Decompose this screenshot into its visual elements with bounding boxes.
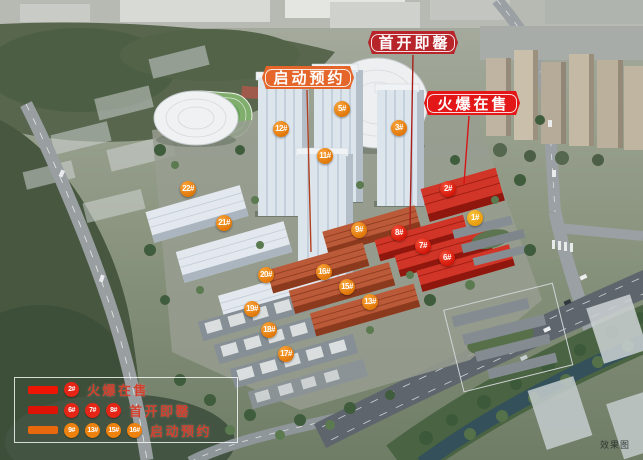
building-badge-21: 21# [216,215,232,231]
building-badge-1: 1# [467,210,483,226]
building-badge-11: 11# [317,148,333,164]
callout-text: 首开即罄 [375,32,450,53]
building-badge-9: 9# [351,222,367,238]
building-badge-12: 12# [273,121,289,137]
building-badge-6: 6# [439,250,455,266]
legend: 2#火爆在售6#7#8#首开即罄9#13#15#16#启动预约 [14,377,238,443]
legend-badge-7: 7# [85,403,100,418]
building-badge-18: 18# [261,322,277,338]
building-badge-16: 16# [316,264,332,280]
callout-label: 首开即罄 [368,31,458,54]
callout-label: 火爆在售 [424,91,520,115]
aerial-render-image: 5#12#3#11#22#2#1#21#9#8#7#6#16#20#15#13#… [0,0,643,460]
legend-badge-16: 16# [127,423,142,438]
building-badge-17: 17# [278,346,294,362]
legend-badge-8: 8# [106,403,121,418]
building-badge-3: 3# [391,120,407,136]
legend-swatch [28,426,58,434]
legend-badge-15: 15# [106,423,121,438]
callout-text: 火爆在售 [434,93,509,114]
building-badge-22: 22# [180,181,196,197]
building-badge-8: 8# [391,225,407,241]
callout-label: 启动预约 [262,66,354,89]
legend-row: 2#火爆在售 [28,381,237,398]
building-badge-7: 7# [415,238,431,254]
legend-label: 火爆在售 [87,380,149,399]
building-badge-2: 2# [440,181,456,197]
callout-text: 启动预约 [270,67,345,88]
legend-label: 首开即罄 [129,401,191,420]
legend-badge-9: 9# [64,423,79,438]
legend-badge-2: 2# [64,382,79,397]
legend-swatch [28,386,58,394]
legend-row: 6#7#8#首开即罄 [28,402,237,419]
building-badge-20: 20# [258,267,274,283]
legend-badge-6: 6# [64,403,79,418]
legend-badge-13: 13# [85,423,100,438]
legend-row: 9#13#15#16#启动预约 [28,422,237,439]
building-badge-19: 19# [244,301,260,317]
building-badge-15: 15# [339,279,355,295]
legend-label: 启动预约 [150,421,212,440]
building-badge-5: 5# [334,101,350,117]
building-badge-13: 13# [362,294,378,310]
watermark: 效果图 [600,438,630,451]
legend-swatch [28,406,58,414]
